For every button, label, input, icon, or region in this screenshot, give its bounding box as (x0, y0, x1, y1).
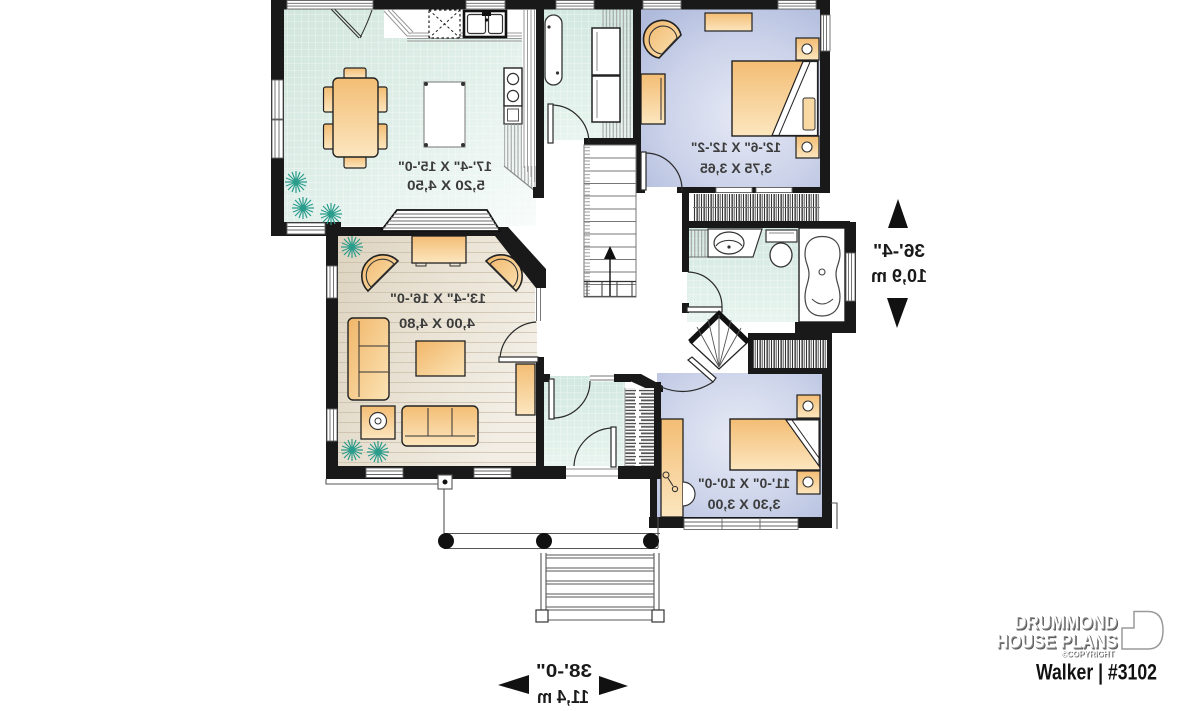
svg-text:10,9 m: 10,9 m (871, 266, 927, 286)
svg-text:38'-0": 38'-0" (536, 661, 592, 681)
svg-text:DRUMMOND: DRUMMOND (1014, 613, 1117, 634)
svg-text:11,4 m: 11,4 m (537, 687, 589, 707)
svg-text:17'-4" X 15'-0": 17'-4" X 15'-0" (398, 159, 492, 174)
svg-text:12'-6" X 12'-2": 12'-6" X 12'-2" (691, 140, 781, 155)
svg-text:Walker | #3102: Walker | #3102 (1036, 660, 1157, 685)
svg-text:36'-4": 36'-4" (873, 241, 925, 261)
svg-text:5,20 X 4,50: 5,20 X 4,50 (407, 178, 485, 193)
svg-text:©COPYRIGHT: ©COPYRIGHT (1061, 650, 1114, 659)
svg-text:3,30 X 3,00: 3,30 X 3,00 (708, 497, 781, 512)
svg-text:3,75 X 3,65: 3,75 X 3,65 (699, 161, 772, 176)
svg-text:13'-4" X 16'-0": 13'-4" X 16'-0" (390, 291, 486, 306)
svg-text:11'-0" X 10'-0": 11'-0" X 10'-0" (698, 476, 790, 491)
svg-text:4,00 X 4,80: 4,00 X 4,80 (399, 316, 475, 331)
